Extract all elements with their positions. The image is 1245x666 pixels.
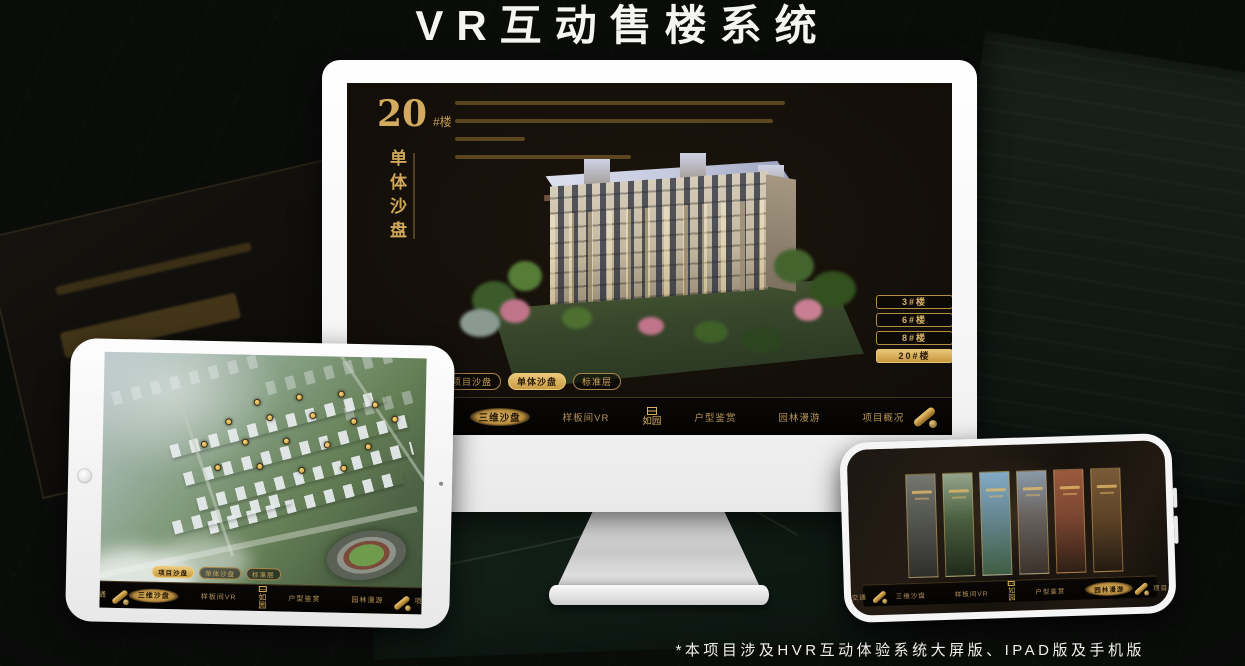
tablet-home-button[interactable] xyxy=(77,468,92,483)
scroll-menu-icon[interactable] xyxy=(391,593,412,614)
tree xyxy=(460,309,500,337)
floor-button-3[interactable]: 3#楼 xyxy=(876,295,952,309)
sandbox-subtitle-vertical: 单体沙盘 xyxy=(384,149,409,245)
floor-button-6[interactable]: 6#楼 xyxy=(876,313,952,327)
building-marker[interactable] xyxy=(256,463,263,470)
phone-screen: 区位交通 三维沙盘 样板间VR 如园 户型鉴赏 园林漫游 项目概况 xyxy=(846,440,1169,616)
desktop-subtabs: 项目沙盘 单体沙盘 标准层 xyxy=(443,373,621,390)
scroll-menu-icon[interactable] xyxy=(910,403,938,431)
nav-item-3d-sandbox[interactable]: 三维沙盘 xyxy=(129,588,179,603)
gallery-panel-autumn[interactable] xyxy=(1053,469,1086,574)
scroll-menu-icon[interactable] xyxy=(1132,580,1150,598)
stadium xyxy=(323,524,411,586)
building-marker[interactable] xyxy=(391,416,398,423)
gallery-panel-courtyard[interactable] xyxy=(905,473,938,578)
building-number-unit: #楼 xyxy=(433,113,452,130)
brand-logo: 如园 xyxy=(1008,581,1016,602)
tree xyxy=(742,327,782,353)
building-marker[interactable] xyxy=(338,391,345,398)
nav-item-showroom-vr[interactable]: 样板间VR xyxy=(946,585,998,601)
building-number-title: 20 xyxy=(377,93,427,135)
monitor-stand-base xyxy=(549,585,769,605)
nav-item-floorplans[interactable]: 户型鉴赏 xyxy=(685,408,745,426)
scene-gallery xyxy=(905,467,1123,578)
nav-item-floorplans[interactable]: 户型鉴赏 xyxy=(279,591,329,606)
building-marker[interactable] xyxy=(296,394,303,401)
tree xyxy=(562,307,592,329)
gallery-panel-garden[interactable] xyxy=(942,472,975,577)
building-render xyxy=(442,131,882,393)
phone-volume-button[interactable] xyxy=(1174,516,1179,544)
brand-logo: 如园 xyxy=(642,407,661,427)
building-body xyxy=(550,171,768,304)
building-marker[interactable] xyxy=(201,441,208,448)
subtab-project-sandbox[interactable]: 项目沙盘 xyxy=(152,566,194,579)
pink-tree xyxy=(500,299,530,323)
nav-item-3d-sandbox[interactable]: 三维沙盘 xyxy=(470,408,530,426)
logo-seal-icon xyxy=(1008,581,1015,586)
floor-button-20[interactable]: 20#楼 xyxy=(876,349,952,363)
tree xyxy=(694,321,728,343)
building-marker[interactable] xyxy=(283,437,290,444)
tree xyxy=(508,261,542,291)
nav-item-3d-sandbox[interactable]: 三维沙盘 xyxy=(887,587,935,603)
gallery-panel-interior[interactable] xyxy=(1090,467,1123,572)
building-marker[interactable] xyxy=(365,443,372,450)
page: 20 #楼 单体沙盘 xyxy=(0,0,1245,666)
nav-item-garden-tour[interactable]: 园林漫游 xyxy=(1085,581,1133,597)
scroll-menu-icon[interactable] xyxy=(109,587,130,608)
nav-item-garden-tour[interactable]: 园林漫游 xyxy=(769,408,829,426)
subtab-single-sandbox[interactable]: 单体沙盘 xyxy=(199,567,241,580)
logo-seal-icon xyxy=(259,586,267,592)
tablet-bottom-nav: 区位交通 三维沙盘 样板间VR 如园 户型鉴赏 园林漫游 项目概况 xyxy=(99,581,421,615)
nav-item-garden-tour[interactable]: 园林漫游 xyxy=(342,593,392,608)
gallery-panel-building[interactable] xyxy=(1016,470,1049,575)
pink-tree xyxy=(794,299,822,321)
nav-item-showroom-vr[interactable]: 样板间VR xyxy=(554,408,619,426)
tablet-camera xyxy=(439,482,443,486)
page-title: VR互动售楼系统 xyxy=(0,0,1245,52)
pink-tree xyxy=(638,317,664,335)
subtab-standard-floor[interactable]: 标准层 xyxy=(573,373,621,390)
tablet-screen: 项目沙盘 单体沙盘 标准层 区位交通 三维沙盘 样板间VR 如园 户型鉴赏 园林… xyxy=(99,352,426,615)
nav-item-showroom-vr[interactable]: 样板间VR xyxy=(192,590,246,605)
floor-button-8[interactable]: 8#楼 xyxy=(876,331,952,345)
brand-logo: 如园 xyxy=(258,586,267,610)
subtab-standard-floor[interactable]: 标准层 xyxy=(246,568,281,581)
tree xyxy=(774,249,814,283)
floor-button-group: 3#楼 6#楼 8#楼 20#楼 xyxy=(876,295,952,363)
phone-bottom-nav: 区位交通 三维沙盘 样板间VR 如园 户型鉴赏 园林漫游 项目概况 xyxy=(863,575,1158,606)
nav-item-floorplans[interactable]: 户型鉴赏 xyxy=(1026,582,1074,598)
gallery-panel-exterior[interactable] xyxy=(979,471,1012,576)
footnote: *本项目涉及HVR互动体验系统大屏版、IPAD版及手机版 xyxy=(676,639,1145,660)
subtitle-rule xyxy=(413,153,415,239)
subtab-single-sandbox[interactable]: 单体沙盘 xyxy=(508,373,566,390)
building-marker[interactable] xyxy=(350,418,357,425)
nav-item-project-overview[interactable]: 项目概况 xyxy=(853,408,913,426)
phone-power-button[interactable] xyxy=(1173,488,1178,508)
phone-device: 区位交通 三维沙盘 样板间VR 如园 户型鉴赏 园林漫游 项目概况 xyxy=(839,433,1176,623)
logo-seal-icon xyxy=(647,407,657,415)
building-marker[interactable] xyxy=(266,414,273,421)
scroll-menu-icon[interactable] xyxy=(870,588,888,606)
city-block xyxy=(265,352,404,395)
building-marker[interactable] xyxy=(324,441,331,448)
tablet-device: 项目沙盘 单体沙盘 标准层 区位交通 三维沙盘 样板间VR 如园 户型鉴赏 园林… xyxy=(65,338,455,629)
